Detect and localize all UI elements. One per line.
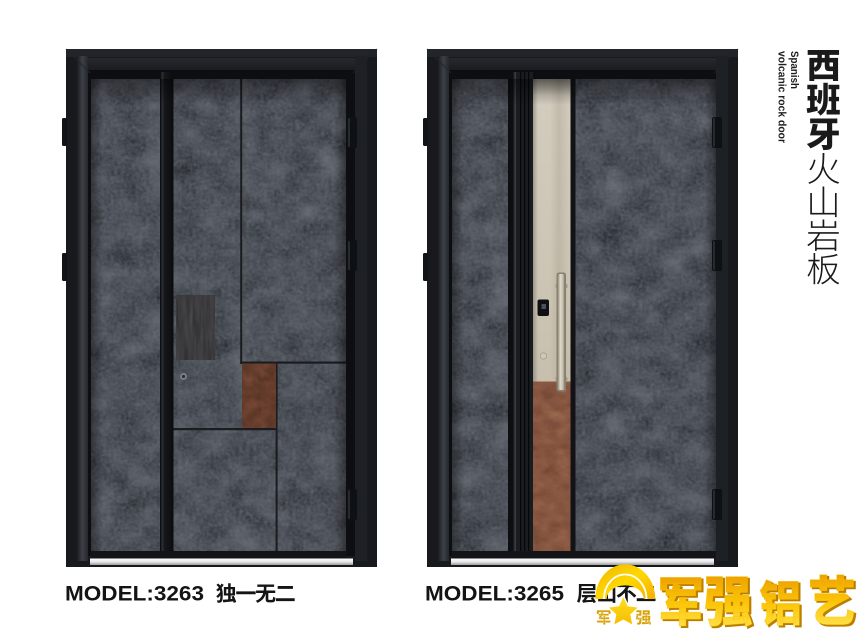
svg-text:Spanish: Spanish xyxy=(788,51,800,89)
svg-text:volcanic rock door: volcanic rock door xyxy=(776,51,788,144)
svg-text:MODEL:3263: MODEL:3263 xyxy=(65,582,204,606)
svg-text:MODEL:3265: MODEL:3265 xyxy=(425,582,564,606)
